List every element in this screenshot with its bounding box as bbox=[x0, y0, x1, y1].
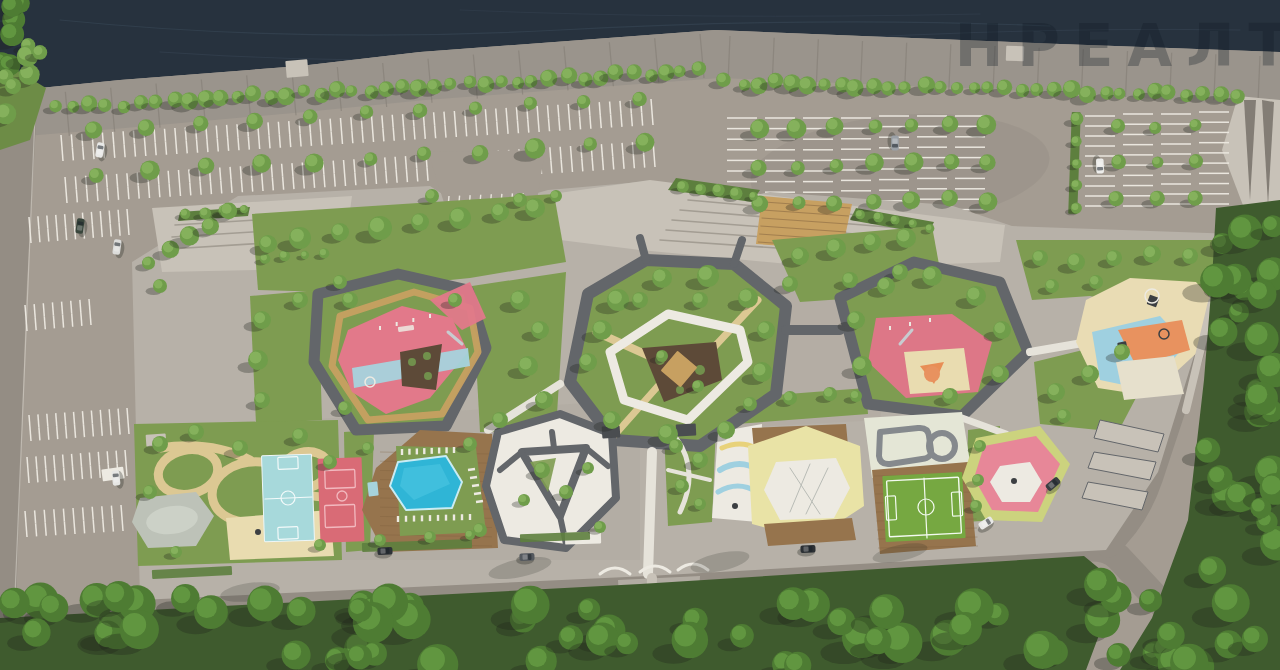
tree-crown bbox=[633, 293, 643, 303]
sun-loungers bbox=[476, 501, 483, 502]
tree-crown bbox=[474, 524, 482, 532]
tree-crown bbox=[891, 216, 897, 222]
parking-lines bbox=[217, 139, 218, 152]
tree-crown bbox=[872, 597, 893, 618]
parking-lines bbox=[30, 428, 31, 441]
parking-lines bbox=[334, 174, 335, 187]
parking-lines bbox=[118, 409, 119, 422]
parking-lines bbox=[52, 302, 53, 315]
tree-crown bbox=[676, 480, 684, 488]
tree-crown bbox=[200, 208, 207, 215]
parking-lines bbox=[73, 467, 74, 480]
tree-crown bbox=[426, 190, 434, 198]
tree-crown bbox=[675, 66, 682, 73]
tree-crown bbox=[628, 65, 637, 74]
parking-lines bbox=[118, 210, 119, 223]
parking-lines bbox=[90, 466, 91, 479]
parking-lines bbox=[128, 186, 129, 199]
parking-lines bbox=[149, 185, 150, 198]
parking-lines bbox=[47, 414, 48, 427]
tree-crown bbox=[1082, 366, 1093, 377]
parking-lines bbox=[365, 172, 366, 185]
car-windshield bbox=[528, 554, 532, 560]
parking-lines bbox=[622, 143, 623, 156]
parking-lines bbox=[35, 317, 36, 330]
parking-lines bbox=[124, 144, 125, 157]
parking-lines bbox=[392, 115, 393, 128]
tree-crown bbox=[793, 197, 801, 205]
car-roof bbox=[77, 225, 83, 231]
parking-lines bbox=[561, 160, 562, 173]
tree-crown bbox=[973, 475, 980, 482]
parking-lines bbox=[293, 176, 294, 189]
parking-lines bbox=[48, 427, 49, 440]
tree-crown bbox=[893, 265, 903, 275]
tree-crown bbox=[867, 195, 876, 204]
tree-crown bbox=[594, 322, 606, 334]
tree-crown bbox=[945, 155, 954, 164]
tree-crown bbox=[783, 277, 793, 287]
parking-lines bbox=[46, 469, 47, 482]
parking-lines bbox=[372, 116, 373, 129]
tree-crown bbox=[339, 402, 347, 410]
tree-crown bbox=[1080, 87, 1090, 97]
parking-lines bbox=[642, 113, 643, 126]
tree-crown bbox=[980, 194, 991, 205]
parking-lines bbox=[106, 174, 107, 187]
tree-crown bbox=[942, 191, 952, 201]
parking-lines bbox=[269, 135, 270, 148]
parking-lines bbox=[238, 137, 239, 150]
tree-crown bbox=[882, 82, 891, 91]
hex-center bbox=[764, 458, 850, 520]
tree-crown bbox=[1112, 120, 1121, 129]
parking-lines bbox=[599, 102, 600, 115]
tree-crown bbox=[1231, 90, 1240, 99]
tree-crown bbox=[588, 625, 608, 645]
parking-lines bbox=[237, 124, 238, 137]
car-roof bbox=[1097, 161, 1102, 166]
tree-crown bbox=[149, 96, 157, 104]
parking-lines bbox=[109, 409, 110, 422]
car-roof bbox=[97, 149, 103, 155]
tree-crown bbox=[1259, 355, 1280, 376]
parking-lines bbox=[102, 506, 103, 519]
parking-lines bbox=[65, 177, 66, 190]
parking-lines bbox=[395, 157, 396, 170]
parking-lines bbox=[119, 422, 120, 435]
parking-lines bbox=[116, 451, 117, 464]
tree-crown bbox=[255, 393, 265, 403]
parking-lines bbox=[119, 223, 120, 236]
parking-lines bbox=[97, 188, 98, 201]
parking-lines bbox=[558, 105, 559, 118]
parking-lines bbox=[207, 139, 208, 152]
tree-crown bbox=[361, 106, 369, 114]
parking-lines bbox=[44, 316, 45, 329]
car-windshield bbox=[113, 473, 119, 477]
tree-crown bbox=[1072, 203, 1079, 210]
tree-crown bbox=[654, 270, 666, 282]
tree-crown bbox=[779, 590, 799, 610]
parking-lines bbox=[71, 134, 72, 147]
tree-crown bbox=[1244, 628, 1260, 644]
tree-crown bbox=[693, 62, 702, 71]
tree-crown bbox=[1115, 345, 1125, 355]
parking-lines bbox=[99, 465, 100, 478]
planting-triangle bbox=[400, 344, 442, 390]
tree-crown bbox=[980, 155, 990, 165]
tree-crown bbox=[1209, 467, 1224, 482]
tree-crown bbox=[1173, 647, 1196, 670]
tree-crown bbox=[1115, 89, 1122, 96]
parking-lines bbox=[38, 414, 39, 427]
parking-lines bbox=[345, 173, 346, 186]
aerial-masterplan-render: НРЕАЛТ bbox=[0, 0, 1280, 670]
parking-lines bbox=[248, 137, 249, 150]
parking-lines bbox=[76, 189, 77, 202]
tree-crown bbox=[824, 388, 832, 396]
parking-lines bbox=[126, 463, 127, 476]
parking-lines bbox=[83, 507, 84, 520]
parking-lines bbox=[259, 136, 260, 149]
parking-lines bbox=[72, 314, 73, 327]
tree-crown bbox=[90, 169, 99, 178]
bed-shrub bbox=[676, 386, 684, 394]
tree-crown bbox=[1026, 634, 1049, 657]
tree-crown bbox=[693, 453, 703, 463]
tree-crown bbox=[428, 80, 437, 89]
tree-crown bbox=[792, 248, 803, 259]
sun-loungers bbox=[470, 477, 477, 478]
parking-lines bbox=[75, 176, 76, 189]
parking-lines bbox=[240, 166, 241, 179]
tree-crown bbox=[365, 153, 373, 161]
parking-lines bbox=[220, 168, 221, 181]
parking-lines bbox=[37, 469, 38, 482]
parking-lines bbox=[175, 128, 176, 141]
tree-crown bbox=[1017, 85, 1025, 93]
parking-lines bbox=[278, 122, 279, 135]
parking-lines bbox=[36, 456, 37, 469]
tree-crown bbox=[445, 79, 452, 86]
tree-crown bbox=[181, 228, 193, 240]
tree-crown bbox=[513, 78, 520, 85]
tree-crown bbox=[935, 82, 942, 89]
parking-lines bbox=[405, 156, 406, 169]
parking-lines bbox=[569, 117, 570, 130]
sun-loungers bbox=[472, 485, 479, 486]
parking-lines bbox=[486, 122, 487, 135]
tree-crown bbox=[699, 267, 712, 280]
parking-lines bbox=[138, 186, 139, 199]
pool-kiosk bbox=[367, 482, 378, 497]
tree-crown bbox=[744, 398, 752, 406]
tree-crown bbox=[324, 456, 332, 464]
tree-crown bbox=[1247, 384, 1267, 404]
tree-crown bbox=[320, 249, 326, 255]
parking-lines bbox=[600, 115, 601, 128]
tree-crown bbox=[1033, 251, 1043, 261]
parking-lines bbox=[127, 173, 128, 186]
tree-crown bbox=[514, 194, 522, 202]
parking-lines bbox=[551, 160, 552, 173]
tree-crown bbox=[315, 540, 322, 547]
parking-lines bbox=[190, 182, 191, 195]
tree-crown bbox=[1190, 120, 1197, 127]
climber-orange bbox=[924, 366, 940, 382]
tree-crown bbox=[1031, 84, 1039, 92]
tree-crown bbox=[332, 224, 343, 235]
parking-lines bbox=[303, 175, 304, 188]
parking-lines bbox=[28, 470, 29, 483]
tree-crown bbox=[1072, 137, 1078, 143]
parking-lines bbox=[101, 423, 102, 436]
tree-crown bbox=[1108, 645, 1122, 659]
tree-crown bbox=[827, 197, 837, 207]
tree-crown bbox=[1, 590, 19, 608]
tree-crown bbox=[580, 354, 591, 365]
tree-crown bbox=[1190, 155, 1199, 164]
tree-crown bbox=[866, 629, 882, 645]
tree-crown bbox=[1087, 570, 1107, 590]
parking-lines bbox=[444, 112, 445, 125]
tree-crown bbox=[492, 204, 503, 215]
tree-crown bbox=[520, 358, 532, 370]
tree-crown bbox=[786, 654, 802, 670]
parking-lines bbox=[570, 146, 571, 159]
tree-crown bbox=[732, 626, 746, 640]
tree-crown bbox=[579, 73, 588, 82]
tree-crown bbox=[867, 79, 877, 89]
parking-lines bbox=[30, 230, 31, 243]
car-windshield bbox=[892, 144, 898, 147]
parking-lines bbox=[241, 179, 242, 192]
parking-lines bbox=[262, 178, 263, 191]
play-equipment bbox=[255, 529, 261, 535]
tree-crown bbox=[343, 293, 353, 303]
tree-crown bbox=[1090, 276, 1098, 284]
parking-lines bbox=[91, 212, 92, 225]
white-path bbox=[648, 452, 652, 574]
play-equipment bbox=[732, 503, 738, 509]
parking-lines bbox=[290, 134, 291, 147]
tree-crown bbox=[301, 251, 306, 256]
parking-lines bbox=[550, 147, 551, 160]
tree-crown bbox=[829, 609, 846, 626]
parking-lines bbox=[74, 412, 75, 425]
tree-crown bbox=[784, 392, 792, 400]
parking-lines bbox=[592, 158, 593, 171]
tree-crown bbox=[139, 121, 149, 131]
tree-crown bbox=[363, 443, 370, 450]
parking-lines bbox=[93, 146, 94, 159]
parking-lines bbox=[582, 158, 583, 171]
parking-lines bbox=[354, 159, 355, 172]
parking-lines bbox=[355, 172, 356, 185]
parking-lines bbox=[89, 453, 90, 466]
tree-crown bbox=[418, 147, 426, 155]
parking-lines bbox=[644, 155, 645, 168]
tree-crown bbox=[1048, 83, 1057, 92]
parking-lines bbox=[559, 118, 560, 131]
tree-crown bbox=[695, 499, 702, 506]
parking-lines bbox=[43, 303, 44, 316]
tree-crown bbox=[583, 463, 590, 470]
parking-lines bbox=[39, 427, 40, 440]
parking-lines bbox=[528, 120, 529, 133]
parking-lines bbox=[466, 123, 467, 136]
tree-crown bbox=[751, 121, 763, 133]
tree-crown bbox=[609, 291, 622, 304]
tree-crown bbox=[731, 188, 739, 196]
tree-crown bbox=[1196, 87, 1205, 96]
tree-crown bbox=[169, 93, 179, 103]
tree-crown bbox=[254, 312, 265, 323]
parking-lines bbox=[64, 522, 65, 535]
parking-lines bbox=[66, 190, 67, 203]
tree-crown bbox=[633, 93, 642, 102]
tree-crown bbox=[541, 71, 551, 81]
parking-lines bbox=[424, 126, 425, 139]
tree-crown bbox=[199, 159, 209, 169]
parking-lines bbox=[45, 523, 46, 536]
parking-lines bbox=[113, 132, 114, 145]
tree-crown bbox=[1183, 249, 1193, 259]
parking-lines bbox=[71, 301, 72, 314]
tree-crown bbox=[535, 463, 545, 473]
scene-svg bbox=[0, 0, 1280, 670]
tree-crown bbox=[659, 66, 669, 76]
tree-crown bbox=[562, 69, 572, 79]
parking-lines bbox=[65, 214, 66, 227]
tree-crown bbox=[847, 80, 858, 91]
tree-crown bbox=[289, 599, 306, 616]
parking-lines bbox=[216, 126, 217, 139]
tree-crown bbox=[254, 155, 265, 166]
tree-crown bbox=[851, 391, 858, 398]
tree-crown bbox=[831, 160, 839, 168]
parking-lines bbox=[74, 521, 75, 534]
tree-crown bbox=[1073, 160, 1079, 166]
tree-crown bbox=[693, 293, 703, 303]
tree-crown bbox=[866, 155, 877, 166]
parking-lines bbox=[72, 454, 73, 467]
tree-crown bbox=[1064, 81, 1075, 92]
tree-crown bbox=[1200, 558, 1217, 575]
tree-crown bbox=[189, 425, 199, 435]
tree-crown bbox=[660, 426, 672, 438]
parking-lines bbox=[279, 135, 280, 148]
parking-lines bbox=[54, 509, 55, 522]
parking-lines bbox=[476, 123, 477, 136]
parking-lines bbox=[98, 452, 99, 465]
parking-lines bbox=[621, 114, 622, 127]
parking-lines bbox=[454, 111, 455, 124]
tree-crown bbox=[375, 535, 382, 542]
parking-lines bbox=[310, 133, 311, 146]
parking-lines bbox=[186, 140, 187, 153]
parking-lines bbox=[25, 305, 26, 318]
parking-lines bbox=[101, 224, 102, 237]
parking-lines bbox=[82, 411, 83, 424]
parking-lines bbox=[373, 129, 374, 142]
car-windshield bbox=[1097, 167, 1103, 171]
parking-lines bbox=[268, 122, 269, 135]
parking-lines bbox=[496, 108, 497, 121]
parking-lines bbox=[121, 505, 122, 518]
tree-crown bbox=[34, 46, 43, 55]
tree-crown bbox=[919, 77, 929, 87]
tree-crown bbox=[1215, 88, 1225, 98]
tree-crown bbox=[1110, 192, 1119, 201]
tree-crown bbox=[412, 214, 423, 225]
parking-lines bbox=[56, 413, 57, 426]
parking-lines bbox=[62, 148, 63, 161]
parking-lines bbox=[75, 425, 76, 438]
parking-lines bbox=[91, 411, 92, 424]
tree-crown bbox=[1141, 591, 1155, 605]
parking-lines bbox=[320, 119, 321, 132]
tree-crown bbox=[971, 501, 978, 508]
car-roof bbox=[113, 477, 119, 483]
parking-lines bbox=[34, 304, 35, 317]
parking-lines bbox=[507, 121, 508, 134]
tree-crown bbox=[585, 138, 593, 146]
parking-lines bbox=[393, 128, 394, 141]
tree-crown bbox=[1231, 217, 1252, 238]
tree-crown bbox=[396, 80, 405, 89]
parking-lines bbox=[100, 211, 101, 224]
tree-crown bbox=[904, 193, 915, 204]
parking-lines bbox=[53, 315, 54, 328]
play-equipment bbox=[1011, 478, 1017, 484]
parking-lines bbox=[612, 144, 613, 157]
tree-crown bbox=[696, 184, 703, 191]
car-roof bbox=[380, 548, 385, 553]
parking-lines bbox=[568, 104, 569, 117]
tree-crown bbox=[194, 117, 203, 126]
tree-crown bbox=[992, 366, 1003, 377]
tree-crown bbox=[1072, 180, 1079, 187]
bed-shrub bbox=[408, 358, 416, 366]
tree-crown bbox=[898, 230, 910, 242]
parking-lines bbox=[128, 421, 129, 434]
tree-crown bbox=[670, 440, 678, 448]
tree-crown bbox=[994, 322, 1005, 333]
parking-lines bbox=[623, 156, 624, 169]
parking-lines bbox=[159, 184, 160, 197]
tree-crown bbox=[909, 220, 914, 225]
parking-lines bbox=[72, 147, 73, 160]
parking-lines bbox=[485, 109, 486, 122]
tree-crown bbox=[713, 185, 721, 193]
tree-crown bbox=[451, 209, 464, 222]
tree-crown bbox=[982, 82, 989, 89]
tree-crown bbox=[836, 78, 845, 87]
parking-lines bbox=[62, 302, 63, 315]
tree-crown bbox=[465, 76, 473, 84]
parking-lines bbox=[282, 164, 283, 177]
parking-lines bbox=[80, 300, 81, 313]
tree-crown bbox=[843, 273, 853, 283]
tree-crown bbox=[173, 586, 190, 603]
tree-crown bbox=[1181, 90, 1189, 98]
tree-crown bbox=[819, 79, 826, 86]
parking-lines bbox=[168, 171, 169, 184]
parking-lines bbox=[230, 167, 231, 180]
parking-lines bbox=[66, 227, 67, 240]
